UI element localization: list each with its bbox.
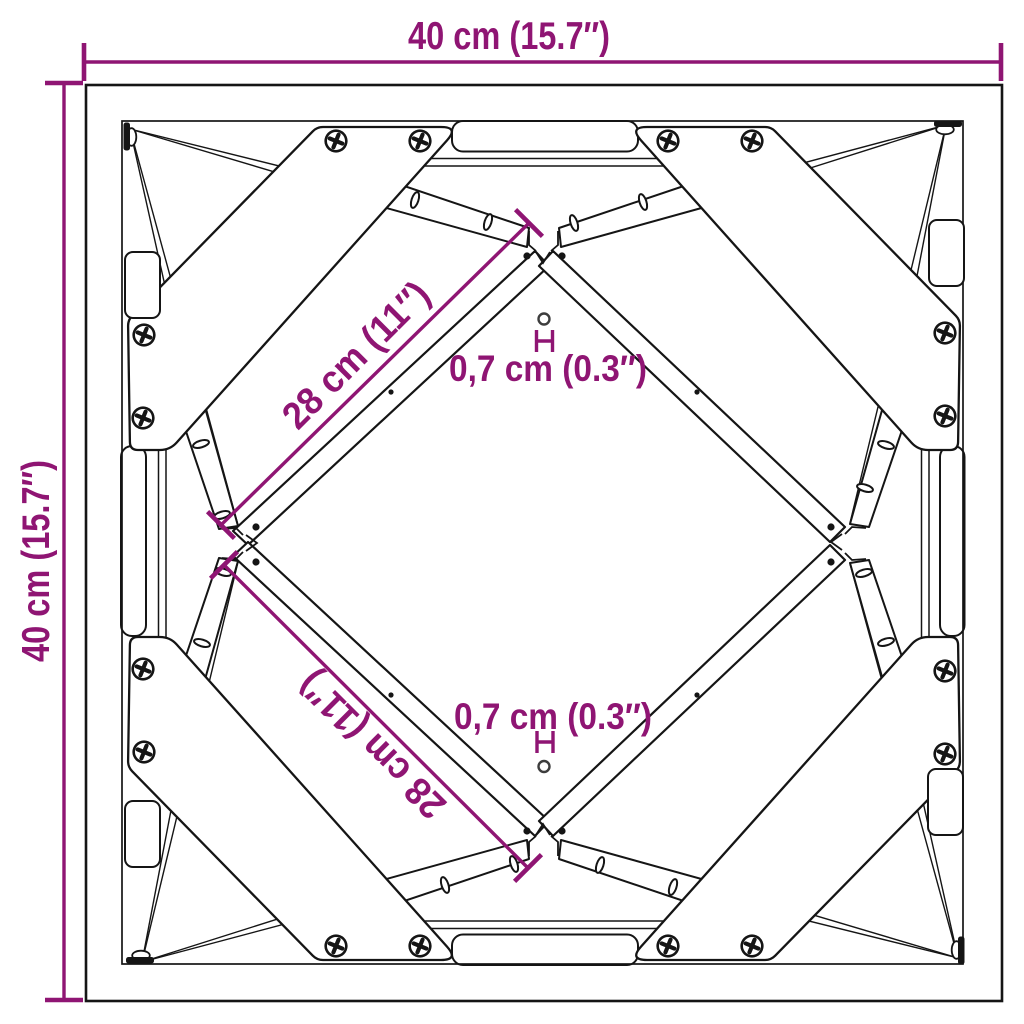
svg-text:40 cm (15.7″): 40 cm (15.7″) xyxy=(408,15,610,58)
svg-text:40 cm (15.7″): 40 cm (15.7″) xyxy=(15,460,58,662)
svg-text:0,7 cm (0.3″): 0,7 cm (0.3″) xyxy=(454,696,652,737)
svg-text:0,7 cm (0.3″): 0,7 cm (0.3″) xyxy=(449,348,647,389)
